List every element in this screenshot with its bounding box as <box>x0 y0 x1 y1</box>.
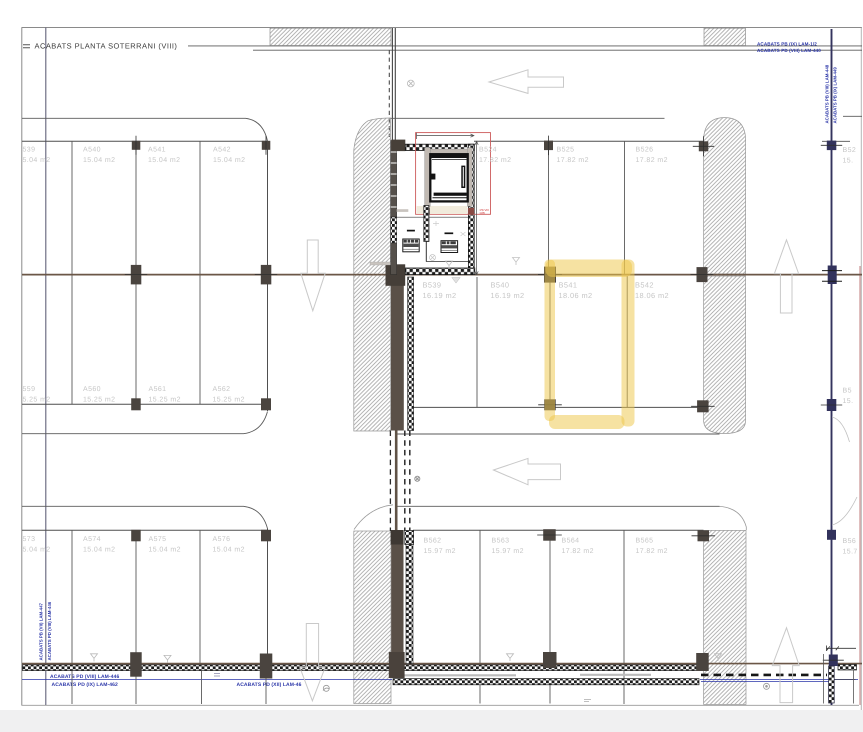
svg-text:B5: B5 <box>843 388 852 395</box>
svg-text:ACABATS PD (IX) LAM-462: ACABATS PD (IX) LAM-462 <box>52 682 118 688</box>
svg-text:B539: B539 <box>423 281 442 290</box>
svg-text:A576: A576 <box>213 536 231 543</box>
svg-text:B564: B564 <box>562 538 580 545</box>
svg-text:B56: B56 <box>843 538 857 545</box>
svg-text:17.82 m2: 17.82 m2 <box>557 157 589 164</box>
svg-text:A561: A561 <box>149 386 167 393</box>
svg-text:ACABATS PD (VIII) LAM-446: ACABATS PD (VIII) LAM-446 <box>47 601 52 660</box>
svg-text:A540: A540 <box>83 147 101 154</box>
svg-text:ACABATS PD (VIII) LAM-446: ACABATS PD (VIII) LAM-446 <box>50 674 119 680</box>
svg-text:15.04 m2: 15.04 m2 <box>148 157 180 164</box>
svg-text:A541: A541 <box>148 147 166 154</box>
svg-text:559: 559 <box>23 386 36 393</box>
svg-text:15.25 m2: 15.25 m2 <box>149 396 181 403</box>
svg-text:15.: 15. <box>843 398 854 405</box>
svg-text:17.82 m2: 17.82 m2 <box>636 157 668 164</box>
svg-text:B524: B524 <box>479 147 497 154</box>
svg-text:15.25 m2: 15.25 m2 <box>213 396 245 403</box>
svg-text:5.25 m2: 5.25 m2 <box>23 396 51 403</box>
svg-text:15.04 m2: 15.04 m2 <box>213 157 245 164</box>
svg-text:B525: B525 <box>557 147 575 154</box>
svg-text:17.82 m2: 17.82 m2 <box>636 548 668 555</box>
svg-text:573: 573 <box>23 536 36 543</box>
svg-text:15.: 15. <box>843 158 854 165</box>
svg-text:15.97 m2: 15.97 m2 <box>424 548 456 555</box>
svg-text:17.82 m2: 17.82 m2 <box>479 157 511 164</box>
svg-text:A575: A575 <box>149 536 167 543</box>
svg-text:ACABATS PB (VIII) LAM-448: ACABATS PB (VIII) LAM-448 <box>824 64 829 123</box>
svg-text:ACABATS PB (IX) LAM-449: ACABATS PB (IX) LAM-449 <box>833 67 838 124</box>
svg-text:B540: B540 <box>491 281 510 290</box>
svg-text:B562: B562 <box>424 538 442 545</box>
svg-text:ACABATS PD (VIII) LAM-440: ACABATS PD (VIII) LAM-440 <box>757 48 821 53</box>
svg-text:17.82 m2: 17.82 m2 <box>562 548 594 555</box>
svg-text:15.04 m2: 15.04 m2 <box>149 547 181 554</box>
svg-text:B542: B542 <box>635 281 654 290</box>
svg-text:B526: B526 <box>636 147 654 154</box>
svg-text:A560: A560 <box>83 386 101 393</box>
svg-text:15.04 m2: 15.04 m2 <box>213 547 245 554</box>
svg-text:15.25 m2: 15.25 m2 <box>83 396 115 403</box>
svg-text:18.06 m2: 18.06 m2 <box>559 291 593 300</box>
svg-text:15.97 m2: 15.97 m2 <box>492 548 524 555</box>
svg-text:16.19 m2: 16.19 m2 <box>423 291 457 300</box>
svg-text:A574: A574 <box>83 536 101 543</box>
svg-text:A562: A562 <box>213 386 231 393</box>
svg-text:B52: B52 <box>843 147 857 154</box>
svg-text:ACABATS PB (IX) LAM-1/2: ACABATS PB (IX) LAM-1/2 <box>757 41 817 46</box>
svg-text:B541: B541 <box>559 281 578 290</box>
svg-text:D05: D05 <box>480 211 486 215</box>
svg-text:A542: A542 <box>213 147 231 154</box>
svg-text:539: 539 <box>23 147 36 154</box>
svg-text:B563: B563 <box>492 538 510 545</box>
svg-text:15.04 m2: 15.04 m2 <box>83 157 115 164</box>
svg-text:15.7: 15.7 <box>843 549 858 556</box>
svg-text:5.04 m2: 5.04 m2 <box>23 157 51 164</box>
svg-text:18.06 m2: 18.06 m2 <box>635 291 669 300</box>
svg-text:ACABATS PD (XII) LAM-46: ACABATS PD (XII) LAM-46 <box>237 682 302 688</box>
svg-text:ACABATS PB (VII) LAM-447: ACABATS PB (VII) LAM-447 <box>39 602 44 660</box>
svg-text:16.19 m2: 16.19 m2 <box>491 291 525 300</box>
svg-text:ACABATS PLANTA SOTERRANI (VIII: ACABATS PLANTA SOTERRANI (VIII) <box>35 41 178 50</box>
svg-text:5.04 m2: 5.04 m2 <box>23 547 51 554</box>
svg-text:B565: B565 <box>636 538 654 545</box>
svg-text:15.04 m2: 15.04 m2 <box>83 547 115 554</box>
